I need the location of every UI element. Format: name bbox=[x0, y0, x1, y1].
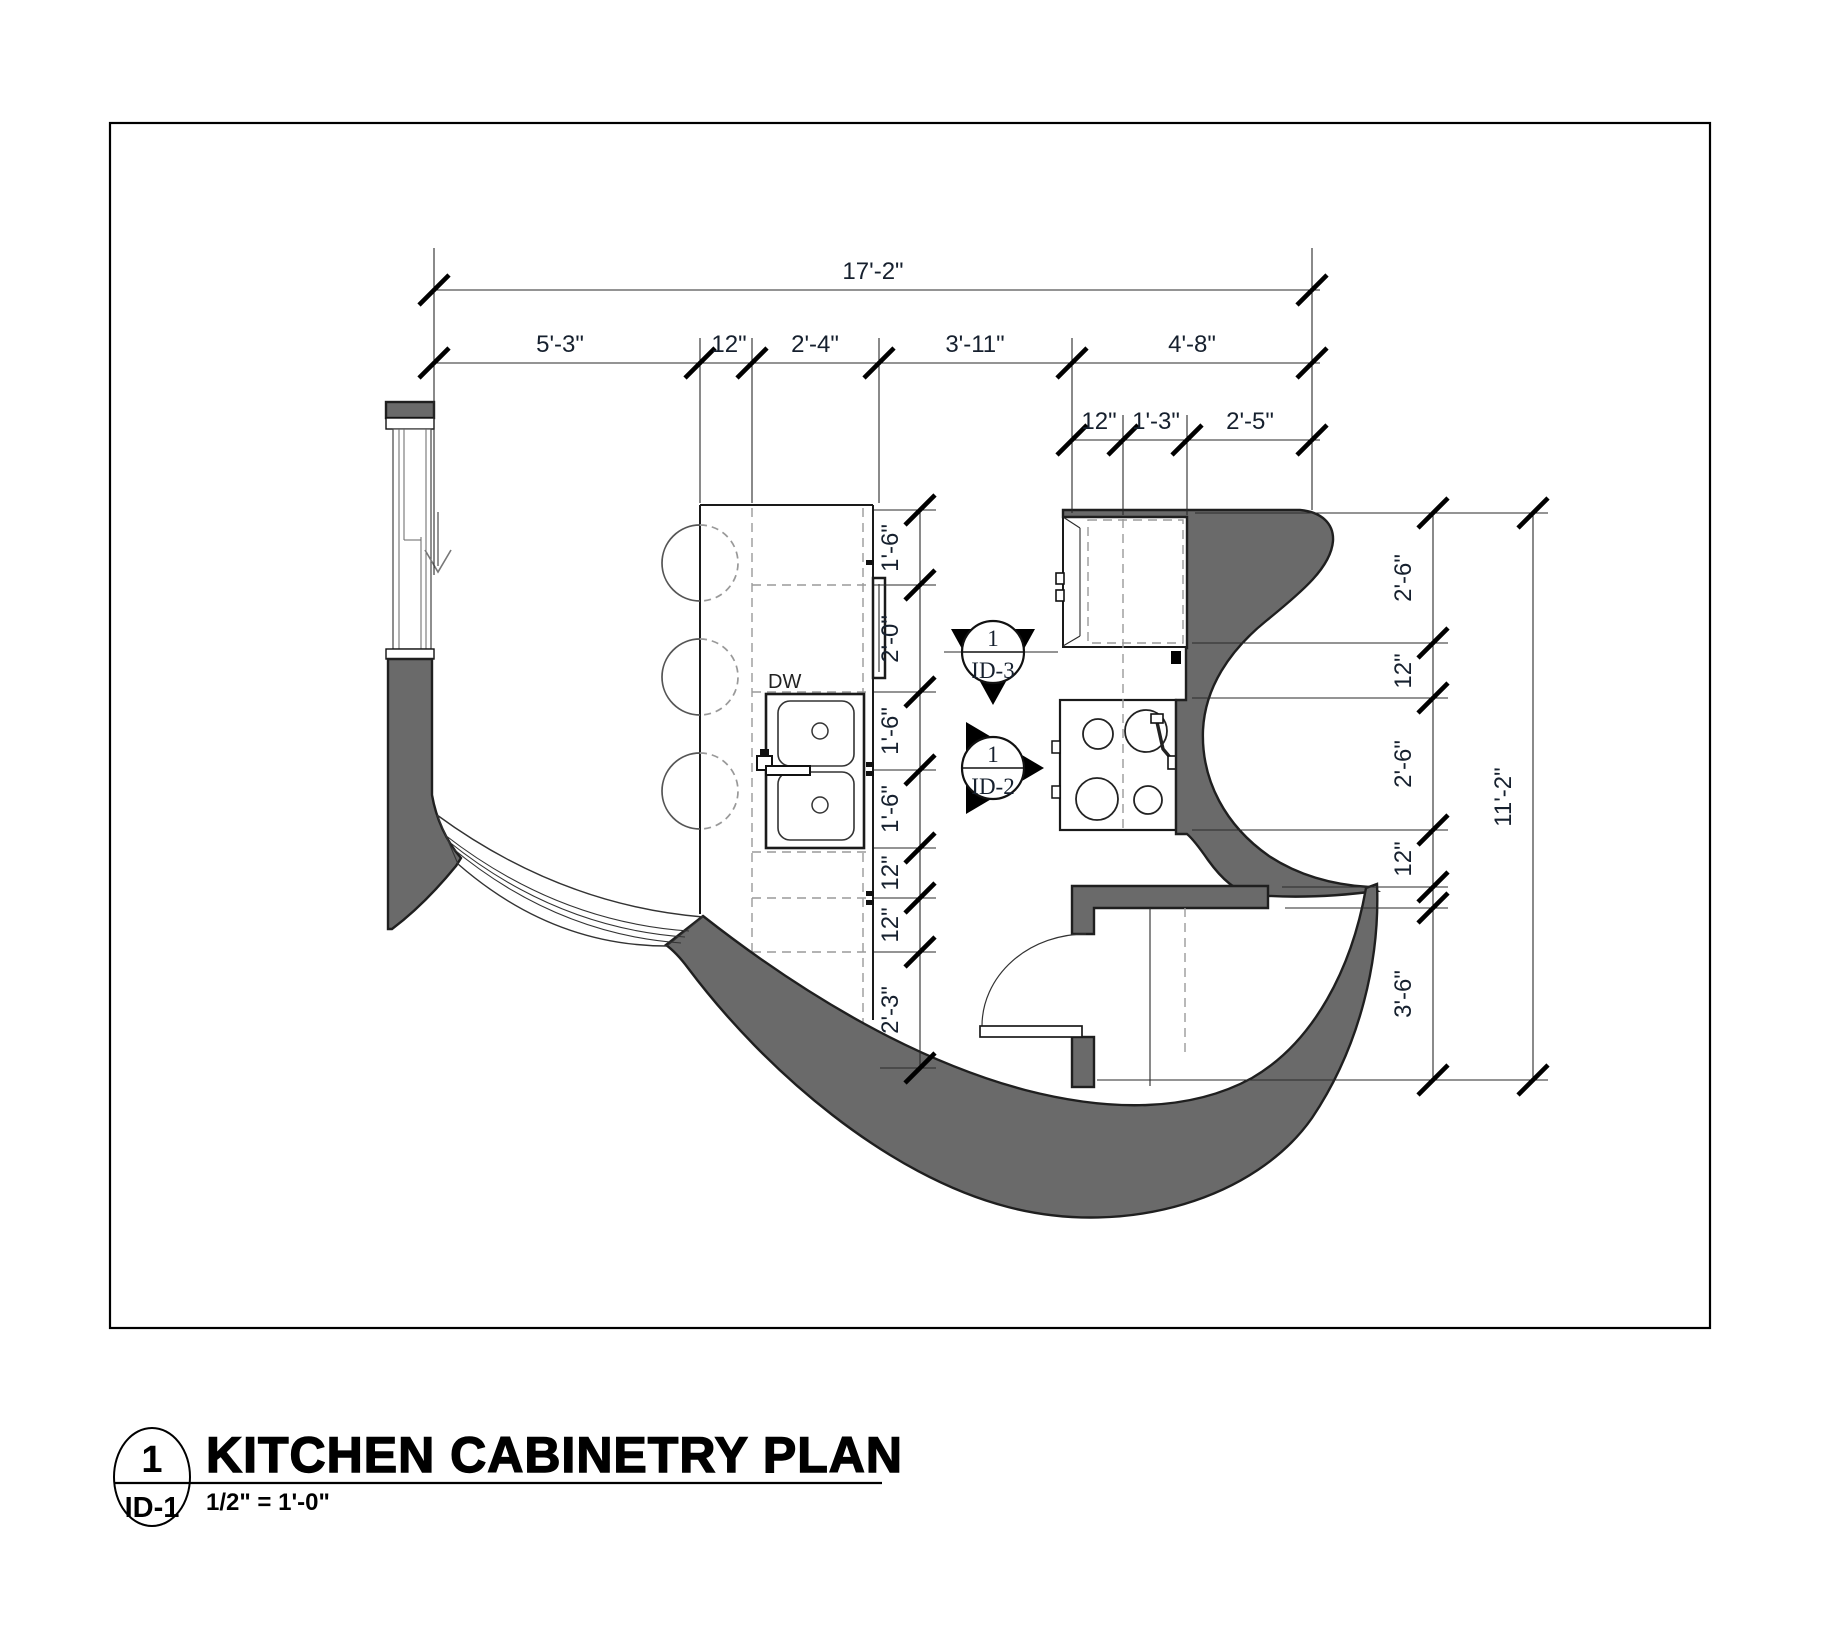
svg-text:2'-5": 2'-5" bbox=[1226, 408, 1274, 435]
svg-text:12": 12" bbox=[877, 907, 904, 942]
svg-text:3'-11": 3'-11" bbox=[945, 331, 1004, 358]
title-block: 1 ID-1 KITCHEN CABINETRY PLAN 1/2" = 1'-… bbox=[114, 1427, 903, 1526]
hinge-mark bbox=[1056, 573, 1064, 584]
sheet-ref: ID-1 bbox=[125, 1492, 180, 1524]
svg-text:12": 12" bbox=[877, 855, 904, 890]
svg-text:2'-0": 2'-0" bbox=[877, 615, 904, 663]
svg-text:2'-6": 2'-6" bbox=[1390, 554, 1417, 602]
svg-text:1'-6": 1'-6" bbox=[877, 707, 904, 755]
dishwasher-label: DW bbox=[768, 671, 801, 693]
wall-connector bbox=[1171, 651, 1181, 664]
svg-text:1'-6": 1'-6" bbox=[877, 524, 904, 572]
svg-text:2'-4": 2'-4" bbox=[791, 331, 839, 358]
detail-number: 1 bbox=[141, 1439, 162, 1481]
svg-text:1'-6": 1'-6" bbox=[877, 785, 904, 833]
hinge-mark bbox=[1056, 590, 1064, 601]
svg-text:12": 12" bbox=[1081, 408, 1116, 435]
interior-wall-door bbox=[980, 886, 1268, 1087]
svg-text:2'-3": 2'-3" bbox=[877, 986, 904, 1034]
callout-number: 1 bbox=[987, 626, 999, 651]
plan-canvas: DW bbox=[0, 0, 1842, 1636]
window-head bbox=[386, 402, 434, 418]
svg-text:2'-6": 2'-6" bbox=[1390, 740, 1417, 788]
svg-text:4'-8": 4'-8" bbox=[1168, 331, 1216, 358]
callout-id3: 1 ID-3 bbox=[944, 621, 1058, 705]
curved-wall-lower bbox=[666, 884, 1377, 1217]
upper-cabinet bbox=[1056, 516, 1187, 647]
svg-text:5'-3": 5'-3" bbox=[536, 331, 584, 358]
callout-sheet: ID-2 bbox=[971, 774, 1014, 799]
svg-text:3'-6": 3'-6" bbox=[1390, 970, 1417, 1018]
callout-number: 1 bbox=[987, 742, 999, 767]
range-knob bbox=[1052, 741, 1060, 753]
svg-text:12": 12" bbox=[1390, 653, 1417, 688]
drawing-title: KITCHEN CABINETRY PLAN bbox=[206, 1427, 903, 1483]
svg-text:12": 12" bbox=[1390, 841, 1417, 876]
curved-glass-band bbox=[437, 815, 703, 946]
dim-total-top: 17'-2" bbox=[842, 258, 903, 285]
callout-id2: 1 ID-2 bbox=[962, 722, 1044, 814]
drawing-scale: 1/2" = 1'-0" bbox=[206, 1489, 330, 1516]
callout-sheet: ID-3 bbox=[971, 658, 1014, 683]
range-knob bbox=[1052, 786, 1060, 798]
left-wall-wedge bbox=[388, 659, 461, 929]
svg-text:1'-3": 1'-3" bbox=[1132, 408, 1180, 435]
dim-total-right: 11'-2" bbox=[1490, 767, 1517, 826]
door-swing-arc bbox=[982, 934, 1086, 1026]
kitchen-sink bbox=[757, 694, 864, 848]
drawing-sheet: DW bbox=[0, 0, 1842, 1636]
door-leaf bbox=[980, 1026, 1082, 1037]
svg-text:12": 12" bbox=[711, 331, 746, 358]
left-window-wall bbox=[386, 402, 461, 929]
